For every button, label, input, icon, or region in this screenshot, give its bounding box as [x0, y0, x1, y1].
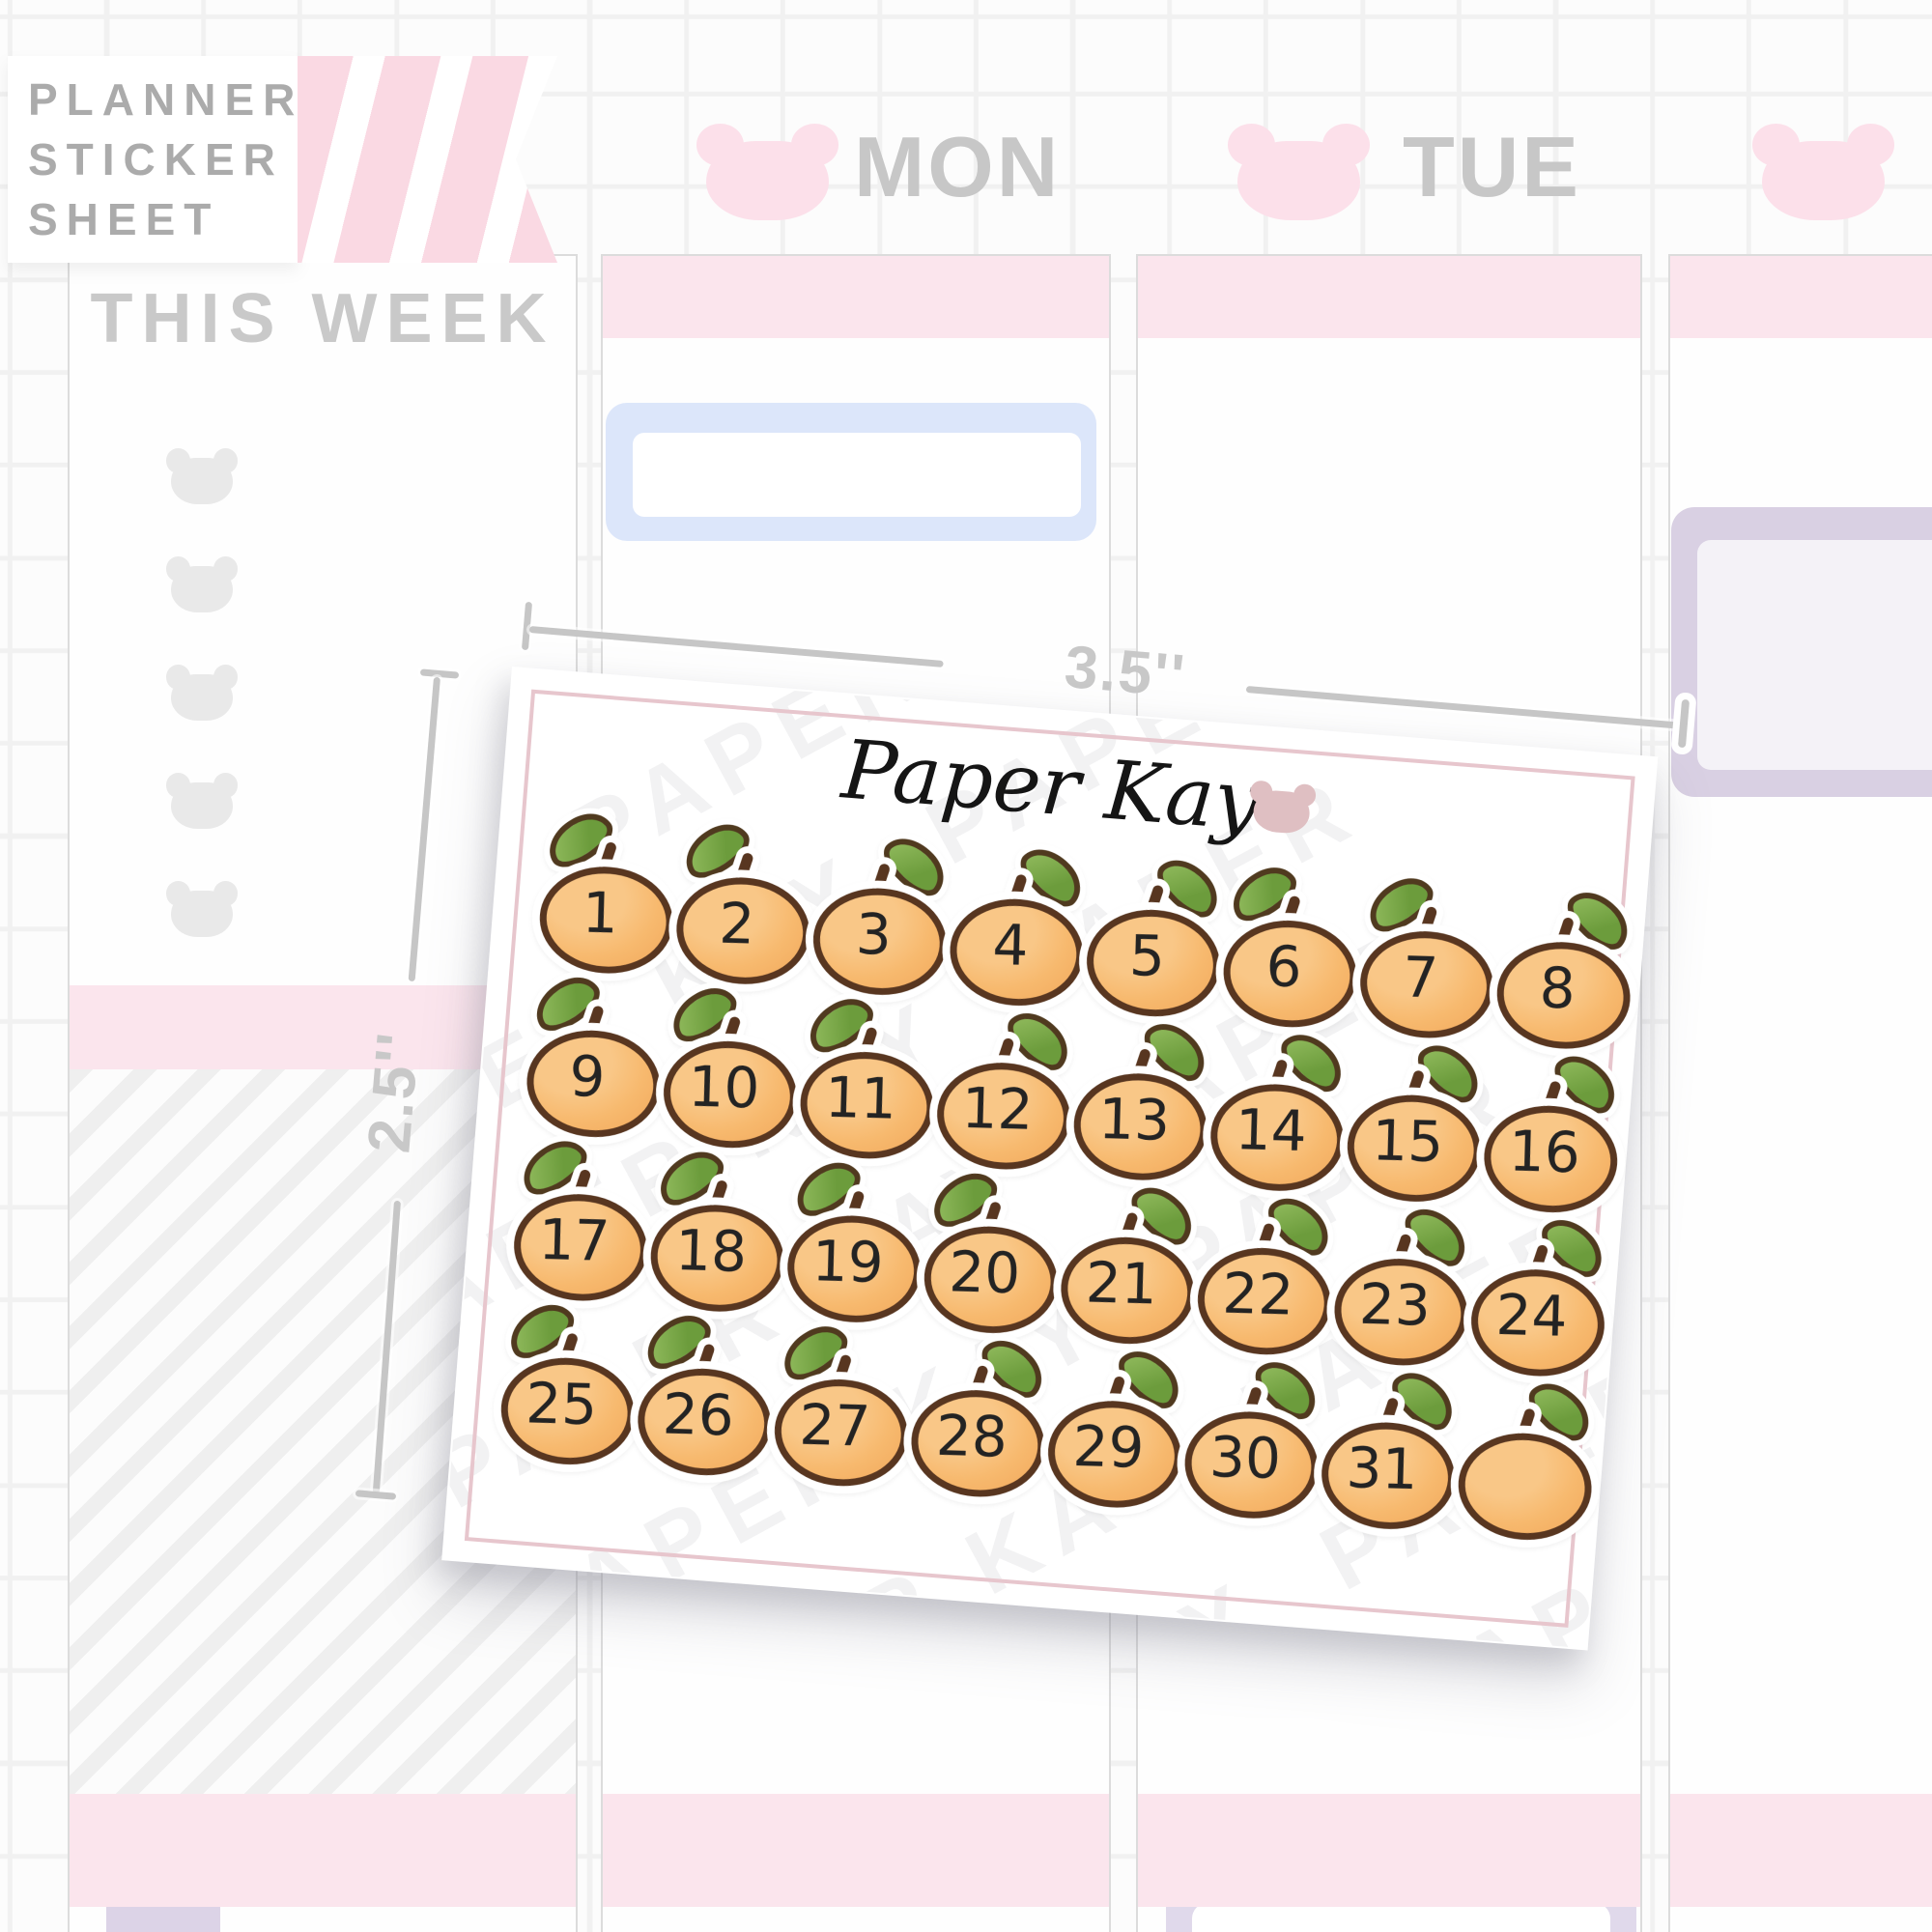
date-number: 26 [625, 1380, 772, 1452]
date-number: 9 [514, 1041, 661, 1113]
orange-date-sticker[interactable]: 28 [895, 1334, 1051, 1499]
orange-date-sticker[interactable]: 16 [1467, 1050, 1624, 1215]
orange-date-sticker[interactable]: 26 [621, 1313, 778, 1478]
orange-date-sticker[interactable]: 12 [921, 1007, 1077, 1172]
orange-date-sticker[interactable]: 11 [784, 996, 941, 1161]
date-number: 23 [1321, 1270, 1468, 1342]
date-number: 10 [651, 1053, 798, 1124]
date-number: 12 [924, 1074, 1071, 1146]
brand-bear-icon [1248, 780, 1316, 835]
date-number: 16 [1471, 1117, 1618, 1188]
orange-date-sticker[interactable]: 18 [635, 1149, 791, 1314]
bear-checkbox-icon [167, 556, 237, 612]
column-header-bar [1670, 256, 1932, 338]
sticker-sheet: PAPER KAY PAPER KAY PAPER KAY PAPER KAY … [441, 667, 1658, 1651]
orange-date-sticker[interactable]: 22 [1181, 1192, 1338, 1357]
orange-date-sticker[interactable]: 2 [660, 822, 816, 987]
date-number: 18 [638, 1216, 784, 1288]
bear-icon [1229, 124, 1369, 220]
orange-date-sticker[interactable]: 1 [524, 810, 680, 976]
purple-notes-box [1671, 507, 1932, 797]
orange-date-sticker[interactable]: 31 [1305, 1367, 1462, 1532]
orange-date-sticker[interactable] [1442, 1378, 1599, 1543]
date-number: 24 [1459, 1281, 1605, 1352]
pink-bottom-bar [603, 1794, 1109, 1907]
orange-date-sticker[interactable]: 25 [485, 1302, 641, 1467]
date-number: 25 [488, 1369, 635, 1440]
date-number: 27 [761, 1391, 908, 1463]
orange-date-sticker[interactable]: 7 [1344, 875, 1500, 1040]
orange-date-sticker[interactable]: 23 [1318, 1203, 1474, 1368]
date-number [1445, 1444, 1592, 1516]
date-number: 8 [1484, 953, 1631, 1025]
bear-icon [697, 124, 838, 220]
pink-bottom-bar [1138, 1794, 1640, 1907]
orange-date-sticker[interactable]: 17 [497, 1138, 654, 1303]
date-number: 14 [1198, 1095, 1345, 1167]
date-number: 6 [1210, 932, 1357, 1004]
pink-bottom-bar [1670, 1794, 1932, 1907]
date-number: 4 [937, 910, 1084, 981]
orange-date-sticker[interactable]: 30 [1169, 1356, 1325, 1521]
date-number: 22 [1184, 1260, 1331, 1331]
date-number: 30 [1172, 1423, 1319, 1494]
date-number: 19 [775, 1227, 922, 1298]
orange-date-sticker[interactable]: 9 [510, 975, 667, 1140]
orange-date-sticker[interactable]: 15 [1331, 1039, 1488, 1205]
bear-checkbox-icon [167, 881, 237, 937]
weekday-tue: TUE [1403, 118, 1581, 216]
flag-line: PLANNER [28, 74, 303, 125]
bear-checkbox-icon [167, 665, 237, 721]
flag-title-label: PLANNER STICKER SHEET [8, 56, 298, 263]
date-number: 17 [501, 1206, 648, 1277]
date-number: 31 [1309, 1434, 1456, 1505]
orange-date-sticker[interactable]: 21 [1044, 1181, 1201, 1347]
pink-bottom-bar [70, 1794, 576, 1907]
date-number: 7 [1348, 943, 1494, 1014]
date-number: 11 [787, 1064, 934, 1135]
orange-date-sticker[interactable]: 19 [771, 1160, 927, 1325]
weekday-mon: MON [854, 118, 1061, 216]
date-number: 20 [911, 1237, 1058, 1309]
date-number: 29 [1036, 1412, 1182, 1484]
date-number: 21 [1048, 1249, 1195, 1321]
orange-date-sticker[interactable]: 8 [1481, 886, 1637, 1051]
orange-date-sticker[interactable]: 5 [1070, 854, 1227, 1019]
flag-line: SHEET [28, 194, 219, 244]
orange-date-sticker[interactable]: 20 [908, 1171, 1065, 1336]
orange-date-sticker[interactable]: 3 [797, 833, 953, 998]
orange-date-sticker[interactable]: 14 [1194, 1029, 1350, 1194]
bear-icon [1753, 124, 1893, 220]
date-number: 13 [1061, 1085, 1207, 1156]
column-header-bar [603, 256, 1109, 338]
date-number: 5 [1074, 922, 1221, 993]
date-number: 2 [664, 889, 810, 960]
date-number: 15 [1334, 1106, 1481, 1178]
product-image: THIS WEEK MON TUE PLANNER [0, 0, 1932, 1932]
sidebar-title: THIS WEEK [70, 279, 576, 358]
orange-date-sticker[interactable]: 24 [1455, 1213, 1611, 1378]
orange-date-sticker[interactable]: 29 [1032, 1345, 1188, 1510]
column-header-bar [1138, 256, 1640, 338]
flag-ribbon-tail [298, 56, 557, 263]
column-partial [1668, 254, 1932, 1932]
orange-date-sticker[interactable]: 4 [933, 843, 1090, 1009]
date-number: 1 [526, 878, 673, 950]
date-number: 3 [800, 899, 947, 971]
bear-checkbox-icon [167, 448, 237, 504]
orange-date-sticker[interactable]: 13 [1058, 1017, 1214, 1182]
orange-date-sticker[interactable]: 10 [647, 985, 804, 1151]
orange-date-sticker[interactable]: 27 [758, 1323, 915, 1489]
flag-line: STICKER [28, 134, 284, 185]
bear-checkbox-icon [167, 773, 237, 829]
date-number: 28 [898, 1402, 1045, 1473]
orange-date-sticker[interactable]: 6 [1207, 865, 1364, 1030]
blue-label-sticker [606, 403, 1096, 541]
